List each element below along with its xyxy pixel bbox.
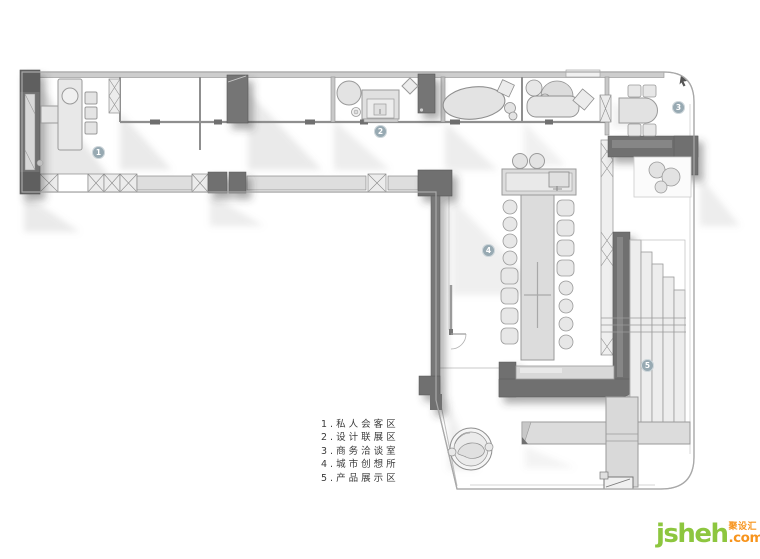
legend-item: 4.城市创想所: [321, 458, 399, 471]
legend-item: 1.私人会客区: [321, 418, 399, 431]
service-column: [606, 397, 638, 487]
plant-group: [634, 157, 691, 197]
marker-number: 2: [378, 128, 383, 136]
plan-marker-3: 3: [672, 101, 685, 114]
plan-marker-4: 4: [482, 244, 495, 257]
gallery-wall-bottom: [499, 379, 633, 397]
logo-com-text: .com: [729, 532, 760, 544]
cabinet-2: [418, 74, 435, 113]
plan-marker-1: 1: [92, 146, 105, 159]
lounge-sofa: [527, 96, 579, 117]
floorplan-canvas: 1 2 3 4 5 1.私人会客区 2.设计联展区 3.商务洽谈室 4.城市创想…: [0, 0, 760, 559]
legend: 1.私人会客区 2.设计联展区 3.商务洽谈室 4.城市创想所 5.产品展示区: [321, 418, 399, 485]
marker-number: 5: [645, 362, 650, 370]
cabinet-1: [227, 75, 248, 123]
legend-item: 2.设计联展区: [321, 431, 399, 444]
marker-number: 1: [96, 149, 101, 157]
meeting-table: [619, 98, 658, 123]
plan-marker-2: 2: [374, 125, 387, 138]
display-bench-inner: [520, 368, 562, 373]
site-logo: jsheh 聚设汇 .com: [656, 523, 760, 545]
plan-marker-5: 5: [641, 359, 654, 372]
marker-number: 4: [486, 247, 491, 255]
logo-jsheh-text: jsheh: [656, 523, 728, 545]
legend-item: 3.商务洽谈室: [321, 445, 399, 458]
legend-item: 5.产品展示区: [321, 472, 399, 485]
round-table: [337, 81, 361, 105]
marker-number: 3: [676, 104, 681, 112]
side-table: [41, 106, 58, 123]
